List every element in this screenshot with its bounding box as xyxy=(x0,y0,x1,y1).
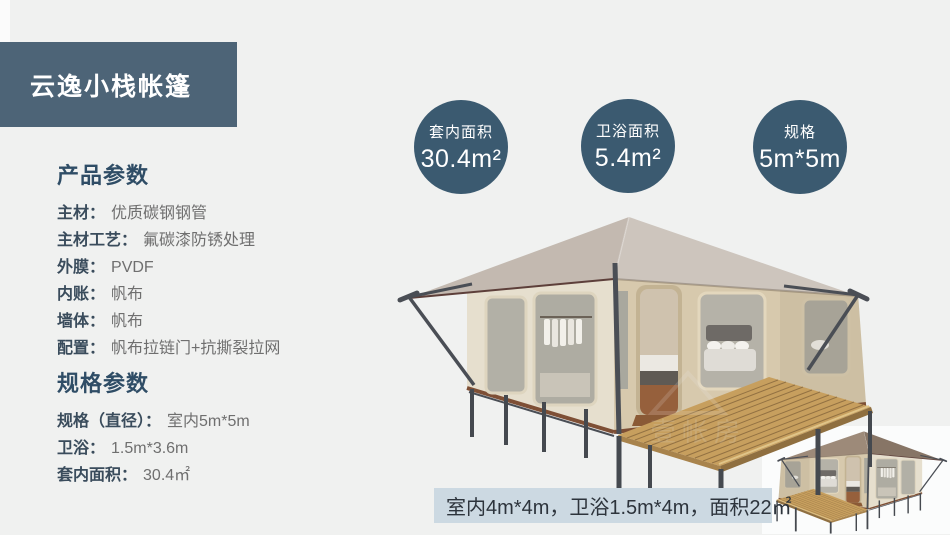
badge-bathroom-area: 卫浴面积 5.4m² xyxy=(581,99,675,193)
spec-params-heading: 规格参数 xyxy=(57,366,387,398)
svg-text:壹帐房: 壹帐房 xyxy=(650,417,746,447)
param-row-material-craft: 主材工艺：氟碳漆防锈处理 xyxy=(57,227,387,254)
small-tent-caption: 室内4m*4m，卫浴1.5m*4m，面积22㎡ xyxy=(434,488,772,523)
spec-params-section: 规格参数 规格（直径）：室内5m*5m 卫浴：1.5m*3.6m 套内面积：30… xyxy=(57,366,387,489)
product-params-heading: 产品参数 xyxy=(57,158,387,190)
param-row-inner-area: 套内面积：30.4㎡ xyxy=(57,462,387,489)
param-row-inner-tent: 内账：帆布 xyxy=(57,281,387,308)
param-row-material: 主材：优质碳钢钢管 xyxy=(57,200,387,227)
main-tent-render: 壹帐房 xyxy=(388,205,908,505)
product-title: 云逸小栈帐篷 xyxy=(30,67,192,103)
param-row-config: 配置：帆布拉链门+抗撕裂拉网 xyxy=(57,335,387,362)
product-title-banner: 云逸小栈帐篷 xyxy=(0,42,237,127)
badge-spec: 规格 5m*5m xyxy=(753,100,847,194)
param-row-size: 规格（直径）：室内5m*5m xyxy=(57,408,387,435)
param-row-outer-membrane: 外膜：PVDF xyxy=(57,254,387,281)
badge-inner-area: 套内面积 30.4m² xyxy=(414,100,508,194)
page-edge-strip xyxy=(0,0,10,42)
param-row-wall: 墙体：帆布 xyxy=(57,308,387,335)
product-params-section: 产品参数 主材：优质碳钢钢管 主材工艺：氟碳漆防锈处理 外膜：PVDF 内账：帆… xyxy=(57,158,387,362)
param-row-bathroom: 卫浴：1.5m*3.6m xyxy=(57,435,387,462)
